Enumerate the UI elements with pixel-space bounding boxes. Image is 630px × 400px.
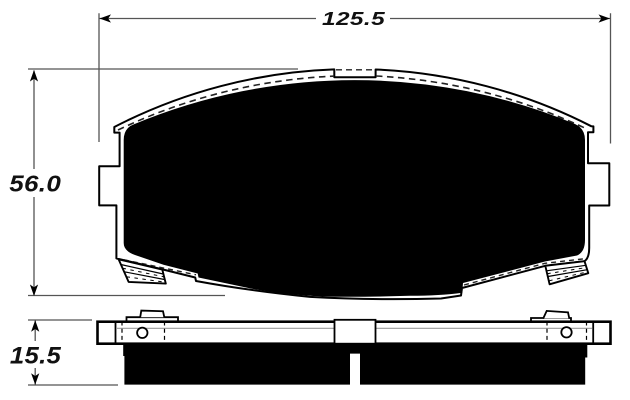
svg-text:56.0: 56.0 <box>9 172 61 197</box>
svg-text:15.5: 15.5 <box>10 342 62 369</box>
svg-text:125.5: 125.5 <box>322 8 386 29</box>
